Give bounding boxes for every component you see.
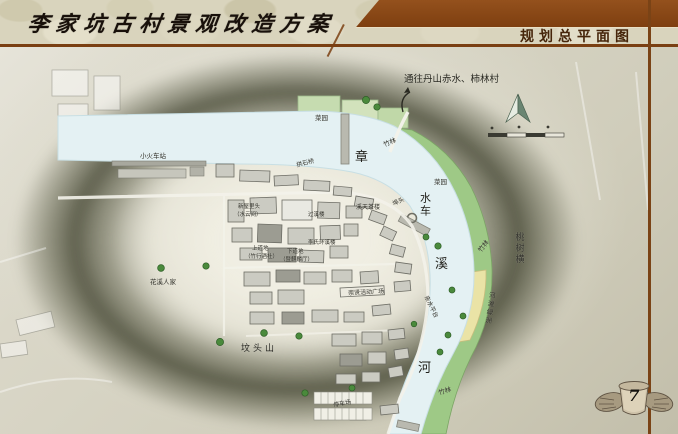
map-label: 河滩绿洲	[482, 291, 493, 326]
map-label: 过溪楼	[308, 213, 325, 219]
map-label: 停车场	[333, 400, 352, 409]
map-label: 菜园	[434, 180, 447, 187]
map-label: 竹林	[383, 138, 398, 149]
vertical-divider	[648, 0, 651, 434]
map-label: 崇贤活动广场	[348, 289, 384, 297]
map-label: 花溪人家	[150, 280, 176, 287]
map-label: 菜园	[315, 116, 328, 123]
map-label: 坟头山	[241, 345, 277, 354]
map-label: 溪	[435, 258, 448, 272]
map-label: 拱石桥	[296, 159, 315, 169]
map-labels-layer: 通往丹山赤水、柿林村菜园竹林小火车站章拱石桥菜园溪天茶楼埠头水车新屋里头（水云间…	[0, 0, 678, 434]
map-label: 章	[355, 151, 368, 165]
map-label: 水车	[419, 192, 431, 218]
map-label: （水云间）	[234, 213, 262, 219]
map-label: 河	[418, 362, 431, 376]
map-label: 桃树横	[513, 232, 522, 265]
map-label: 小火车站	[140, 154, 166, 161]
map-label: 竹林	[478, 240, 491, 254]
section-title: 规划总平面图	[374, 26, 634, 46]
map-label: 溪天茶楼	[356, 205, 380, 211]
map-label: 亲水平台	[422, 295, 438, 319]
map-label: 李氏环溪楼	[308, 241, 336, 247]
map-label: 通往丹山赤水、柿林村	[404, 75, 499, 85]
map-label: 埠头	[392, 197, 406, 208]
map-label: 下道地	[287, 250, 304, 256]
slide: 通往丹山赤水、柿林村菜园竹林小火车站章拱石桥菜园溪天茶楼埠头水车新屋里头（水云间…	[0, 0, 678, 434]
slide-header: 李家坑古村景观改造方案 规划总平面图	[0, 0, 678, 47]
map-label: 竹林	[438, 387, 452, 397]
page-title: 李家坑古村景观改造方案	[26, 8, 338, 38]
map-label: 上道地	[252, 247, 269, 253]
page-number: 7	[622, 386, 646, 405]
map-label: （竹行酒社）	[245, 255, 278, 261]
map-label: 新屋里头	[238, 205, 260, 211]
map-label: （暨麒麟厅）	[280, 258, 313, 264]
